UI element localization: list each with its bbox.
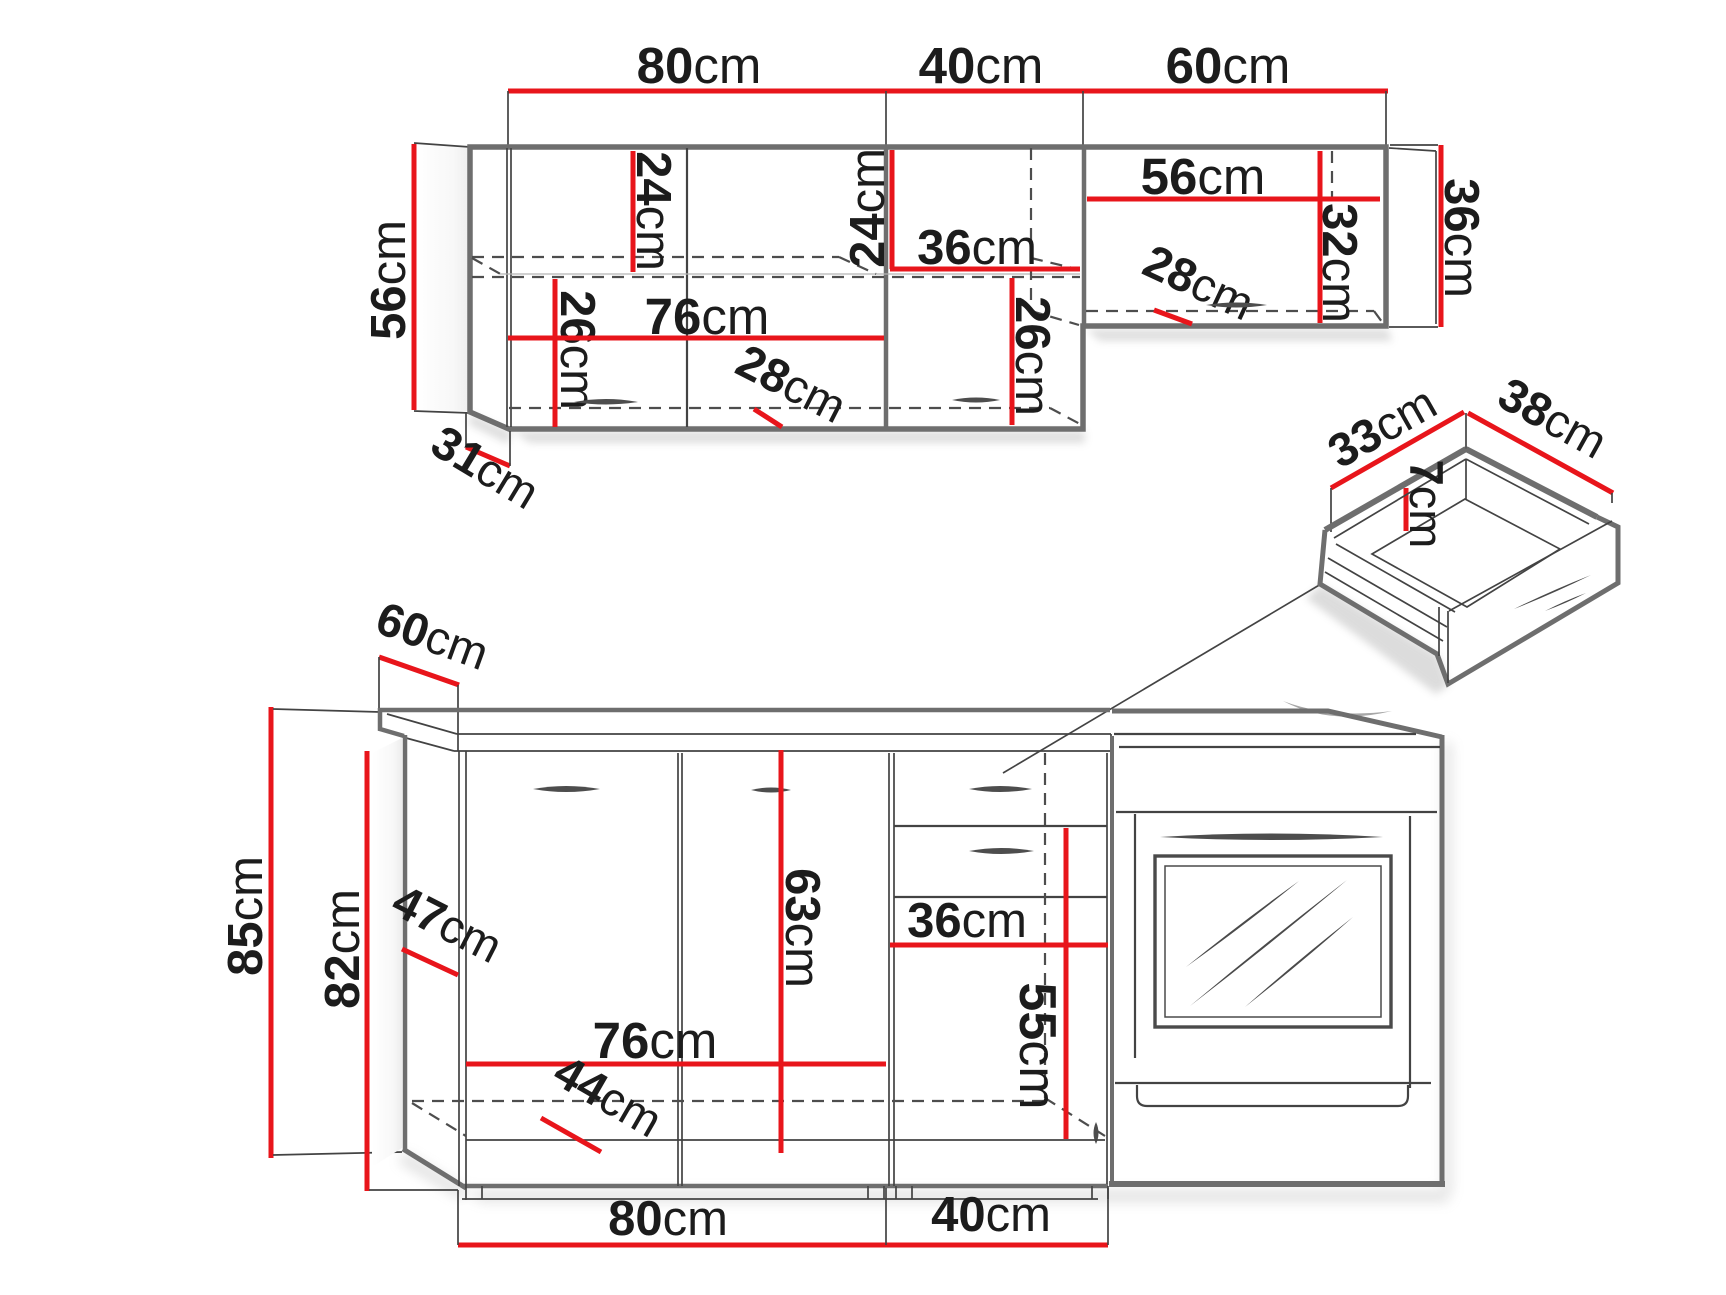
- svg-text:40cm: 40cm: [919, 37, 1044, 94]
- svg-text:26cm: 26cm: [550, 290, 604, 410]
- svg-text:80cm: 80cm: [637, 37, 762, 94]
- svg-text:24cm: 24cm: [626, 151, 680, 271]
- svg-text:36cm: 36cm: [917, 221, 1037, 275]
- svg-text:85cm: 85cm: [219, 856, 273, 976]
- svg-text:26cm: 26cm: [1005, 296, 1059, 416]
- svg-text:80cm: 80cm: [608, 1192, 728, 1246]
- svg-text:40cm: 40cm: [931, 1188, 1051, 1242]
- svg-text:24cm: 24cm: [841, 148, 895, 268]
- svg-text:82cm: 82cm: [316, 889, 370, 1009]
- svg-text:55cm: 55cm: [1008, 982, 1066, 1109]
- svg-text:76cm: 76cm: [593, 1012, 718, 1069]
- svg-text:36cm: 36cm: [907, 894, 1027, 948]
- svg-text:7cm: 7cm: [1400, 460, 1453, 549]
- svg-text:63cm: 63cm: [775, 868, 829, 988]
- svg-text:60cm: 60cm: [1166, 37, 1291, 94]
- svg-text:36cm: 36cm: [1434, 178, 1488, 298]
- svg-text:56cm: 56cm: [362, 220, 416, 340]
- svg-text:32cm: 32cm: [1312, 203, 1366, 323]
- svg-text:56cm: 56cm: [1141, 148, 1266, 205]
